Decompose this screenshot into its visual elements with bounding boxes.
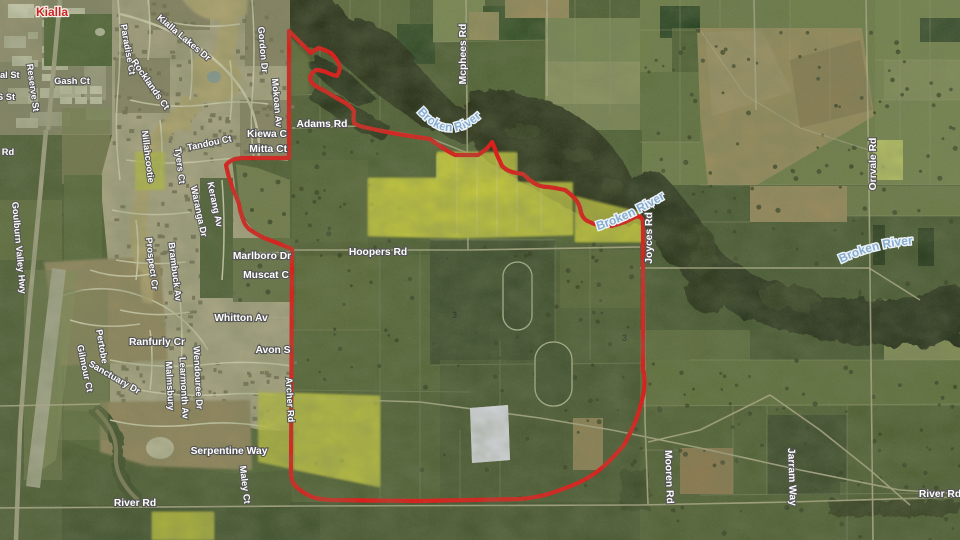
svg-text:Mcphees Rd: Mcphees Rd (458, 24, 469, 85)
svg-text:Kiewa C: Kiewa C (247, 129, 288, 140)
svg-text:Kialla: Kialla (36, 5, 68, 19)
svg-text:River Rd: River Rd (114, 498, 156, 509)
svg-text:ral St: ral St (0, 70, 20, 80)
svg-text:Gash Ct: Gash Ct (54, 76, 90, 86)
svg-text:Muscat C: Muscat C (243, 270, 289, 281)
svg-text:Whitton Av: Whitton Av (214, 313, 268, 324)
svg-text:Rd: Rd (2, 147, 15, 157)
svg-text:Adams Rd: Adams Rd (297, 119, 348, 130)
svg-text:Avon S: Avon S (255, 345, 290, 356)
svg-text:Marlboro Dr: Marlboro Dr (233, 251, 291, 262)
svg-text:Ranfurly Cr: Ranfurly Cr (129, 337, 185, 348)
svg-text:Hoopers Rd: Hoopers Rd (349, 247, 407, 258)
svg-text:Jarram Way: Jarram Way (785, 448, 798, 507)
svg-text:Mooren Rd: Mooren Rd (662, 450, 675, 504)
svg-text:River Rd: River Rd (919, 489, 960, 500)
svg-text:Mitta Ct: Mitta Ct (249, 144, 287, 155)
svg-text:S St: S St (0, 92, 15, 102)
svg-text:Serpentine Way: Serpentine Way (191, 446, 268, 457)
svg-text:Joyces Rd: Joyces Rd (644, 212, 655, 264)
svg-text:Orrvale Rd: Orrvale Rd (868, 138, 879, 191)
